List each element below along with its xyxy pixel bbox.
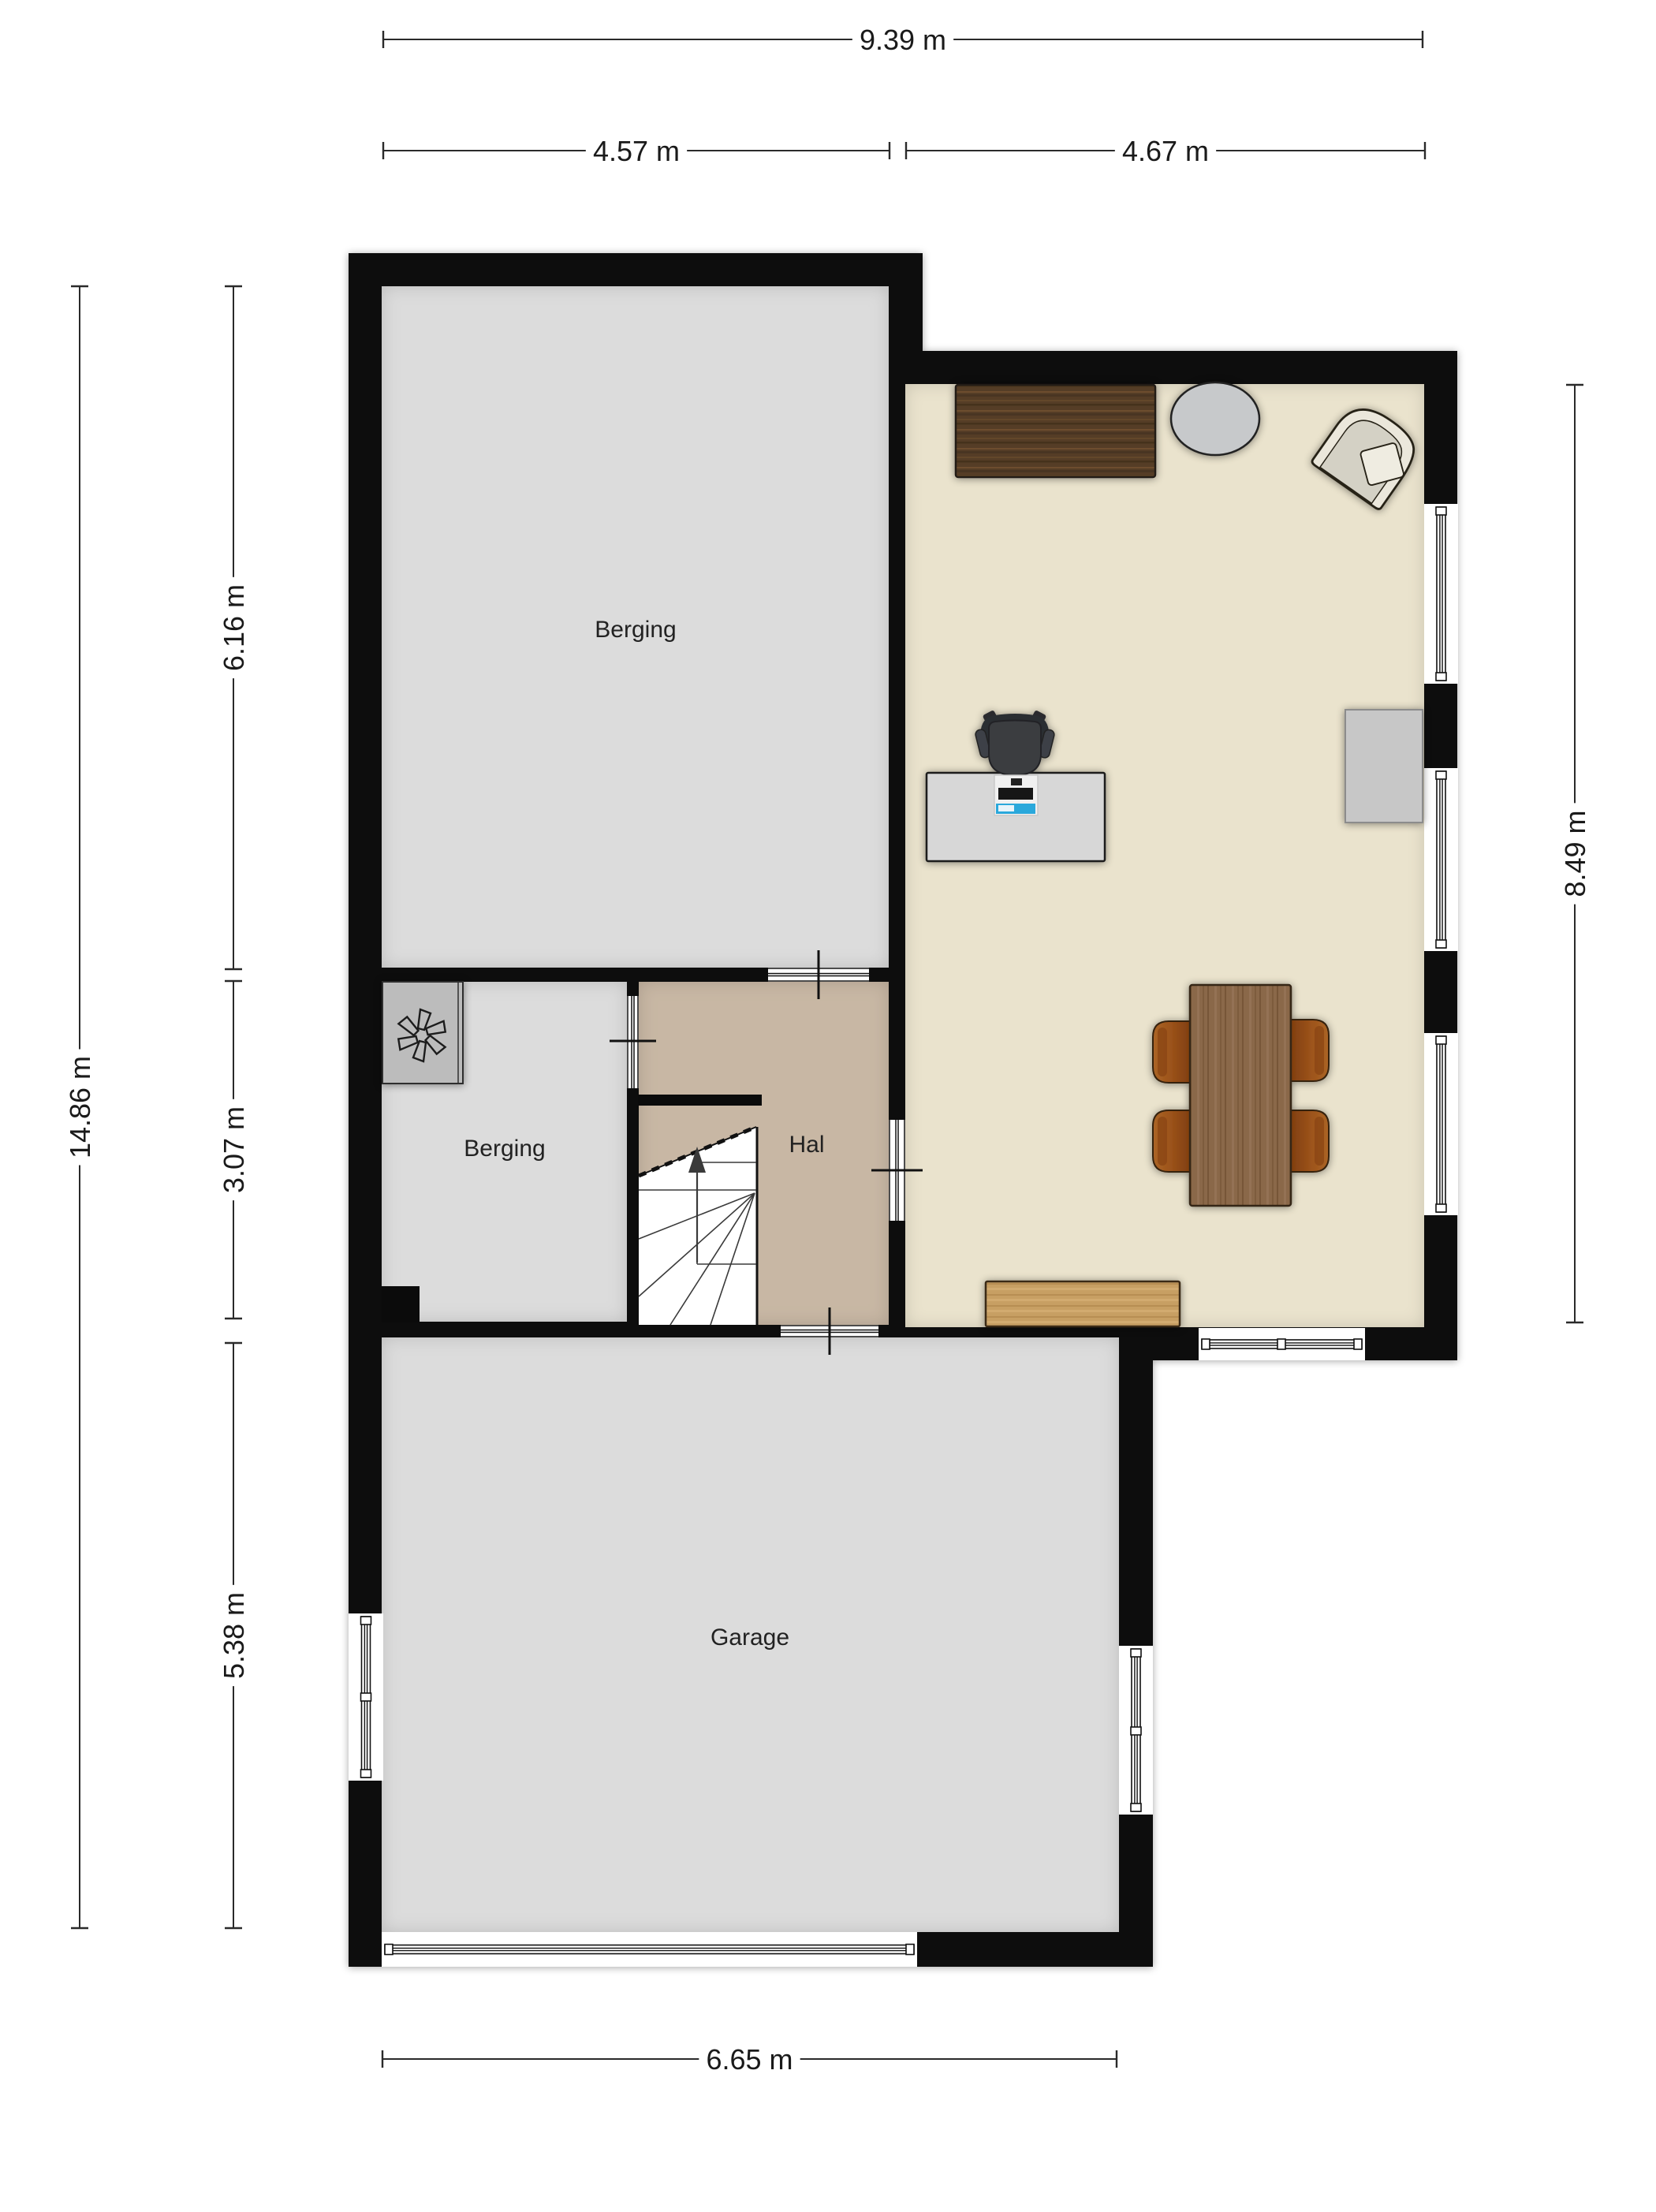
svg-text:6.65 m: 6.65 m — [706, 2043, 793, 2076]
svg-text:3.07 m: 3.07 m — [218, 1106, 250, 1193]
svg-text:8.49 m: 8.49 m — [1559, 810, 1591, 897]
svg-text:Berging: Berging — [595, 617, 676, 643]
svg-text:4.57 m: 4.57 m — [593, 135, 680, 167]
svg-text:9.39 m: 9.39 m — [860, 24, 946, 56]
svg-text:6.16 m: 6.16 m — [218, 584, 250, 671]
svg-text:5.38 m: 5.38 m — [218, 1592, 250, 1679]
svg-text:14.86 m: 14.86 m — [64, 1056, 96, 1158]
svg-text:Hal: Hal — [789, 1132, 824, 1158]
svg-text:Garage: Garage — [711, 1624, 789, 1651]
svg-text:4.67 m: 4.67 m — [1122, 135, 1209, 167]
svg-text:Berging: Berging — [464, 1136, 545, 1162]
